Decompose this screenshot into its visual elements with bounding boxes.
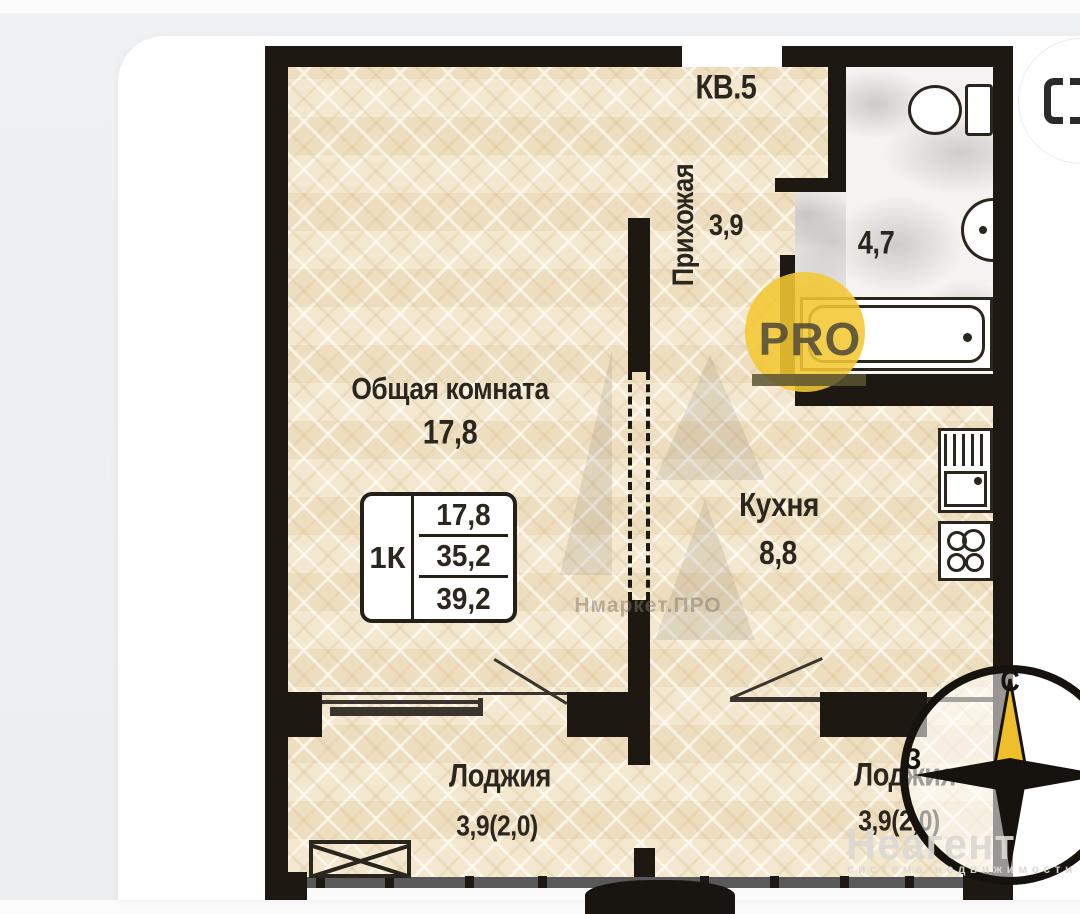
wall-top-right xyxy=(782,46,1013,67)
compass-north-label: С xyxy=(1000,665,1020,699)
wall-loggia-divider xyxy=(628,692,650,765)
portal-watermark-label: Нмаркет.ПРО xyxy=(574,594,721,618)
glazing-mullion xyxy=(840,876,849,888)
pro-watermark-label: PRO xyxy=(759,312,862,366)
floor-plan: КВ.5 Прихожая 3,9 4,7 Общая комната 17,8… xyxy=(265,46,1013,900)
wall-hall-bath-horizontal xyxy=(775,178,846,192)
glazing-mullion xyxy=(905,876,914,888)
toilet-tank-icon xyxy=(965,84,993,136)
fullscreen-icon[interactable] xyxy=(1044,78,1063,124)
agency-watermark-subtitle: система недвижимости xyxy=(847,862,1077,876)
apartment-type-cell: 1К xyxy=(364,496,414,619)
wall-bottom-left-corner xyxy=(265,872,307,900)
hallway-name-label: Прихожая xyxy=(667,164,701,286)
wall-loggia-band-1 xyxy=(288,692,322,737)
kitchen-sink-unit-icon xyxy=(938,428,993,513)
wall-left xyxy=(265,46,288,895)
sink-drain-dot xyxy=(979,226,987,234)
wall-loggia-band-2 xyxy=(567,692,628,737)
hallway-area-label: 3,9 xyxy=(709,209,743,243)
wall-top-left xyxy=(265,46,682,67)
toilet-bowl-icon xyxy=(908,85,962,135)
living-room-area-label: 17,8 xyxy=(423,414,478,453)
apartment-info-table: 1К 17,8 35,2 39,2 xyxy=(360,492,517,623)
fullscreen-icon[interactable] xyxy=(1070,78,1080,124)
pro-watermark-bar xyxy=(752,374,866,386)
total-area-cell: 39,2 xyxy=(419,578,508,619)
loggia-band-edge-line xyxy=(322,692,567,695)
bathroom-area-label: 4,7 xyxy=(858,225,895,262)
living-area-cell: 17,8 xyxy=(419,496,508,537)
sliding-door-dashed xyxy=(628,372,650,600)
loggia-left-name-label: Лоджия xyxy=(449,758,551,795)
compass-west-label: З xyxy=(905,743,922,777)
glazing-mullion xyxy=(770,876,779,888)
wall-central-upper xyxy=(628,218,650,372)
window-divider xyxy=(478,698,483,716)
wall-loggia-divider-stub xyxy=(634,848,655,878)
living-room-name-label: Общая комната xyxy=(351,371,548,407)
kitchen-name-label: Кухня xyxy=(739,486,819,524)
window-living-line xyxy=(322,700,478,704)
page: { "plan": { "apartment_label": "КВ.5", "… xyxy=(0,0,1080,900)
area-cell: 35,2 xyxy=(419,537,508,578)
glazing-mullion xyxy=(538,876,547,888)
compass-east-point xyxy=(1010,758,1080,792)
compass-west-point xyxy=(914,758,1010,792)
stove-icon xyxy=(938,521,993,581)
loggia-box-icon xyxy=(309,840,411,878)
bottom-artifact xyxy=(585,880,735,914)
window-living-frame xyxy=(330,707,478,716)
glazing-mullion xyxy=(465,876,474,888)
kitchen-area-label: 8,8 xyxy=(759,534,797,572)
wall-hall-bath-vertical xyxy=(828,67,846,180)
window-kitchen-line xyxy=(730,697,820,702)
loggia-left-area-label: 3,9(2,0) xyxy=(456,811,538,844)
apartment-number-label: КВ.5 xyxy=(696,69,757,108)
